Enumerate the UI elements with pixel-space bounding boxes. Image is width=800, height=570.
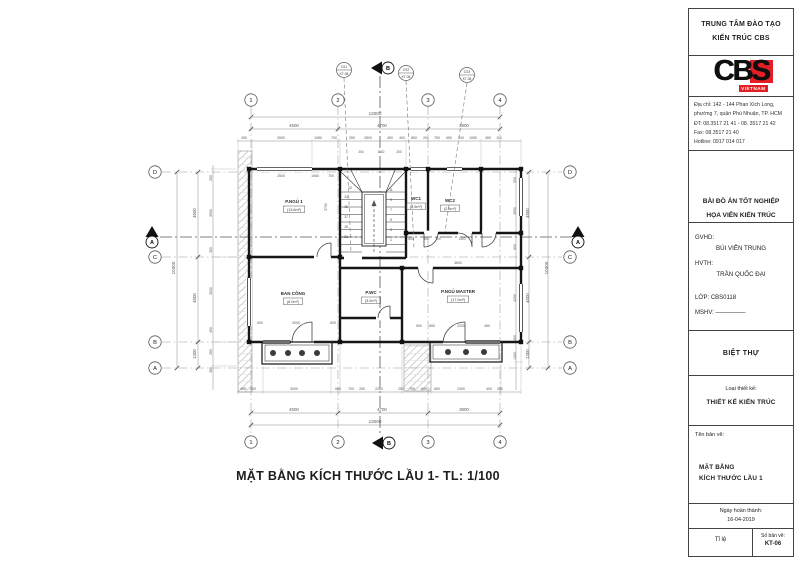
- dimension-text: 550: [513, 177, 517, 183]
- dimension-text: 100: [496, 136, 502, 140]
- room-area-value: (17.0m²): [451, 298, 466, 302]
- detail-callout: CS1KT-08: [337, 63, 352, 78]
- dimension-text: 2300: [457, 387, 465, 391]
- dimension-text: 3800: [459, 123, 469, 128]
- address-line: phường 7, quận Phú Nhuận, TP. HCM: [694, 110, 788, 119]
- address-line: Địa chỉ: 142 - 144 Phan Xích Long,: [694, 101, 788, 110]
- section-marker: A: [572, 226, 585, 248]
- fax-line: Fax: 08.3517 21 40: [694, 129, 788, 138]
- dimension-text: 1300: [192, 349, 197, 359]
- section-marker: A: [146, 226, 159, 248]
- section-marker-layer: AABB: [146, 62, 585, 450]
- dimension-text: 250: [349, 136, 355, 140]
- dimension-text: 3800: [459, 407, 469, 412]
- detail-callout-number: CS1: [341, 65, 348, 69]
- section-marker-arrow: [572, 226, 585, 237]
- grid-bubble-label: B: [568, 340, 572, 346]
- room-label: P.NGỦ 1: [285, 198, 303, 204]
- drawing-sheet: { "title_block": { "header_line1": "TRUN…: [0, 0, 800, 565]
- dimension-text: 700: [409, 387, 415, 391]
- detail-callout: CS2KT-08: [399, 66, 414, 81]
- stair-step-number: 1: [390, 238, 392, 242]
- dimension-text: 1080: [311, 174, 319, 178]
- detail-callout-sheet: KT-08: [402, 75, 411, 79]
- room-label: WC2: [445, 198, 455, 203]
- sheet-label: Số bản vẽ:: [753, 532, 793, 540]
- stair-step-number: 5: [390, 218, 392, 222]
- dimension-text: 3950: [513, 207, 517, 215]
- dimension-text: 13000: [369, 111, 382, 116]
- dimension-text: 400: [399, 136, 405, 140]
- dimension-text: 2500: [277, 174, 285, 178]
- people-section: GVHD: BÙI VIỄN TRUNG HVTH: TRẦN QUỐC ĐẠI…: [689, 223, 793, 331]
- dimension-text: 700: [331, 136, 337, 140]
- design-type-section: Loại thiết kế: THIẾT KẾ KIẾN TRÚC: [689, 376, 793, 426]
- dimension-text: 200: [423, 136, 429, 140]
- logo-vietnam-tag: VIETNAM: [739, 85, 768, 92]
- title-block: TRUNG TÂM ĐÀO TẠO KIẾN TRÚC CBS CBS VIET…: [688, 8, 794, 557]
- project-line1: BÀI ĐỒ ÁN TỐT NGHIỆP: [689, 195, 793, 209]
- dimension-text: 450: [209, 327, 213, 333]
- section-marker-arrow: [146, 226, 159, 237]
- dimension-text: 600: [513, 244, 517, 250]
- dimension-text: 250: [209, 349, 213, 355]
- logo-letters: CBS: [701, 56, 781, 88]
- floor-plan: 1300045004700380045025001080700250280045…: [0, 0, 690, 565]
- stair-step-number: 11: [389, 188, 393, 192]
- dimension-text: 10300: [171, 261, 176, 274]
- grid-bubble-label: 1: [249, 440, 252, 446]
- detail-callout-sheet: KT-08: [463, 77, 472, 81]
- dimension-text: 1130: [378, 150, 385, 154]
- dimension-text: 4500: [289, 407, 299, 412]
- dimension-text: 3700: [324, 203, 328, 211]
- dimension-text: 250: [497, 387, 503, 391]
- doors: [292, 233, 496, 342]
- dimension-text: 4500: [525, 208, 530, 218]
- section-lines: [160, 76, 572, 436]
- stair-step-number: 21: [344, 235, 348, 239]
- dimension-text: 450: [387, 136, 393, 140]
- detail-callout-sheet: KT-08: [340, 72, 349, 76]
- balcony-left: [262, 342, 332, 364]
- dimension-text: 600: [257, 321, 263, 325]
- dimension-text: 4500: [192, 293, 197, 303]
- company-name-line1: TRUNG TÂM ĐÀO TẠO: [689, 18, 793, 32]
- phone-line: ĐT: 08.3517 21 41 - 08. 3517 21 42: [694, 120, 788, 129]
- dimension-text: 100: [435, 237, 441, 241]
- dimension-text: 3600: [454, 261, 462, 265]
- dimension-text: 600: [330, 321, 336, 325]
- detail-callout-number: CS3: [464, 70, 471, 74]
- dimension-text: 4500: [289, 123, 299, 128]
- dimension-text: 4700: [377, 407, 387, 412]
- dimension-text: 250: [359, 387, 365, 391]
- dimension-text: 1080: [469, 136, 477, 140]
- drawing-caption: MẶT BẰNG KÍCH THƯỚC LẦU 1- TL: 1/100: [236, 468, 500, 483]
- dimension-text: 2300: [457, 324, 465, 328]
- dimension-text: 4700: [377, 123, 387, 128]
- dimension-text: 300: [209, 247, 213, 253]
- dimension-text: 13000: [369, 419, 382, 424]
- dimension-text: 250: [209, 175, 213, 181]
- address-section: Địa chỉ: 142 - 144 Phan Xích Long, phườn…: [689, 97, 793, 151]
- room-label: WC1: [411, 196, 421, 201]
- design-type-label: Loại thiết kế:: [689, 386, 793, 392]
- hotline-line: Hotline: 0917 014 017: [694, 138, 788, 147]
- dimension-text: 450: [241, 136, 247, 140]
- date-label: Ngày hoàn thành:: [689, 507, 793, 516]
- balcony-right: [430, 342, 502, 362]
- grid-bubble-label: 3: [426, 440, 429, 446]
- project-type: BIỆT THỰ: [689, 331, 793, 376]
- section-marker-arrow: [371, 62, 382, 75]
- drawing-name-section: Tên bản vẽ: MẶT BẰNG KÍCH THƯỚC LẦU 1: [689, 426, 793, 504]
- sheet-cell: Số bản vẽ: KT-06: [753, 529, 793, 557]
- stair-step-number: 19: [344, 225, 348, 229]
- dimension-text: 1300: [513, 352, 517, 360]
- dimension-text: 4500: [525, 293, 530, 303]
- dimension-text: 2500: [277, 136, 285, 140]
- dimension-text: 250: [396, 150, 402, 154]
- dimension-text: 700: [328, 174, 334, 178]
- grid-bubble-label: A: [568, 366, 572, 372]
- dimension-text: 3000: [290, 387, 298, 391]
- dimension-text: 4500: [192, 208, 197, 218]
- class-line: LỚP: CBS0118: [695, 295, 787, 301]
- grid-bubble-label: 2: [336, 440, 339, 446]
- stair-step-number: 13: [344, 195, 348, 199]
- logo-section: CBS VIETNAM: [689, 56, 793, 97]
- stair-step-number: 3: [390, 228, 392, 232]
- room-label: P.WC: [365, 290, 377, 295]
- date-value: 16-04-2019: [689, 516, 793, 525]
- scale-sheet-section: Tỉ lệ Số bản vẽ: KT-06: [689, 529, 793, 557]
- scale-label: Tỉ lệ: [689, 529, 753, 557]
- grid-bubble-label: D: [153, 170, 157, 176]
- dimension-text: 3000: [209, 287, 213, 295]
- room-area-value: (13.6m²): [287, 208, 302, 212]
- dimension-text: 400: [486, 387, 492, 391]
- stair-step-number: 15: [344, 205, 348, 209]
- hvth-label: HVTH:: [695, 261, 787, 267]
- room-area-value: (6.0m²): [287, 300, 300, 304]
- mshv-line: MSHV: —————: [695, 310, 787, 316]
- staircase: [340, 170, 406, 252]
- dimension-ticks: [175, 115, 550, 427]
- project-line2: HỌA VIÊN KIẾN TRÚC: [689, 209, 793, 223]
- dimension-text: 10300: [544, 261, 549, 274]
- dimension-text: 3950: [209, 209, 213, 217]
- dimension-text: 800: [423, 237, 429, 241]
- grid-bubble-label: 1: [249, 98, 252, 104]
- dimension-text: 500: [416, 324, 422, 328]
- section-marker-letter: A: [150, 240, 154, 246]
- dimension-text: 450: [484, 324, 490, 328]
- project-section: BÀI ĐỒ ÁN TỐT NGHIỆP HỌA VIÊN KIẾN TRÚC: [689, 151, 793, 223]
- dimension-text: 4250: [513, 294, 517, 302]
- dimension-text: 650: [446, 136, 452, 140]
- dimension-text: 450: [240, 387, 246, 391]
- gvhd-name: BÙI VIỄN TRUNG: [695, 245, 787, 252]
- grid-bubble-label: 2: [336, 98, 339, 104]
- section-marker-letter: B: [386, 66, 390, 72]
- gvhd-label: GVHD:: [695, 235, 787, 241]
- section-marker-letter: A: [576, 240, 580, 246]
- dimension-text: 450: [485, 136, 491, 140]
- dimension-text: 450: [513, 335, 517, 341]
- date-section: Ngày hoàn thành: 16-04-2019: [689, 504, 793, 529]
- grid-bubble-label: C: [153, 255, 157, 261]
- grid-bubble-label: C: [568, 255, 572, 261]
- grid-bubble-label: B: [153, 340, 157, 346]
- company-name-line2: KIẾN TRÚC CBS: [689, 32, 793, 46]
- section-marker: B: [371, 62, 394, 75]
- dimension-text: 650: [434, 387, 440, 391]
- room-area-value: (3.0m²): [365, 299, 378, 303]
- grid-bubble-label: D: [568, 170, 572, 176]
- dimension-text: 250: [250, 387, 256, 391]
- detail-callout-number: CS2: [403, 68, 410, 72]
- dimension-text: 240: [458, 136, 464, 140]
- room-label: BAN CÔNG: [281, 289, 306, 296]
- dimension-text: 750: [434, 136, 440, 140]
- stair-step-number: 7: [390, 208, 392, 212]
- extension-lines: [211, 139, 523, 394]
- dimension-text: 2260: [375, 387, 383, 391]
- dimension-text: 1300: [525, 349, 530, 359]
- detail-callout: CS3KT-08: [460, 68, 475, 83]
- callout-layer: CS1KT-08CS2KT-08CS3KT-08: [337, 63, 475, 83]
- dimension-text: 700: [348, 387, 354, 391]
- stair-step-number: 12: [348, 186, 352, 190]
- drawing-name-label: Tên bản vẽ:: [695, 432, 787, 438]
- design-type: THIẾT KẾ KIẾN TRÚC: [689, 399, 793, 406]
- dimension-text: 800: [408, 237, 414, 241]
- dimension-text: 250: [358, 150, 364, 154]
- dimension-text: 380: [209, 367, 213, 373]
- stair-step-number: 17: [344, 215, 348, 219]
- stair-step-number: 9: [390, 198, 392, 202]
- drawing-name: MẶT BẰNG KÍCH THƯỚC LẦU 1: [699, 462, 787, 484]
- room-area-value: (2.5m²): [444, 207, 457, 211]
- section-marker: B: [372, 437, 395, 450]
- dimension-text: 250: [398, 387, 404, 391]
- company-header: TRUNG TÂM ĐÀO TẠO KIẾN TRÚC CBS: [689, 9, 793, 56]
- dimension-text: 1080: [314, 136, 322, 140]
- dimension-text: 2800: [364, 136, 372, 140]
- room-area-value: (2.5m²): [410, 205, 423, 209]
- hvth-name: TRẦN QUỐC ĐẠI: [695, 271, 787, 278]
- sheet-number: KT-06: [753, 540, 793, 550]
- section-marker-arrow: [372, 437, 383, 450]
- dimension-text: 850: [411, 136, 417, 140]
- room-label: P.NGỦ MASTER: [441, 288, 476, 294]
- dimension-text: 650: [429, 324, 435, 328]
- dimension-text: 3000: [292, 321, 300, 325]
- dimension-text: 600: [335, 387, 341, 391]
- dimension-text: 1400: [458, 237, 465, 241]
- grid-bubble-label: 3: [426, 98, 429, 104]
- grid-bubble-label: A: [153, 366, 157, 372]
- dimension-lines: [177, 117, 548, 425]
- cbs-logo: CBS VIETNAM: [701, 59, 781, 93]
- dimension-text: 500: [421, 387, 427, 391]
- section-marker-letter: B: [387, 441, 391, 447]
